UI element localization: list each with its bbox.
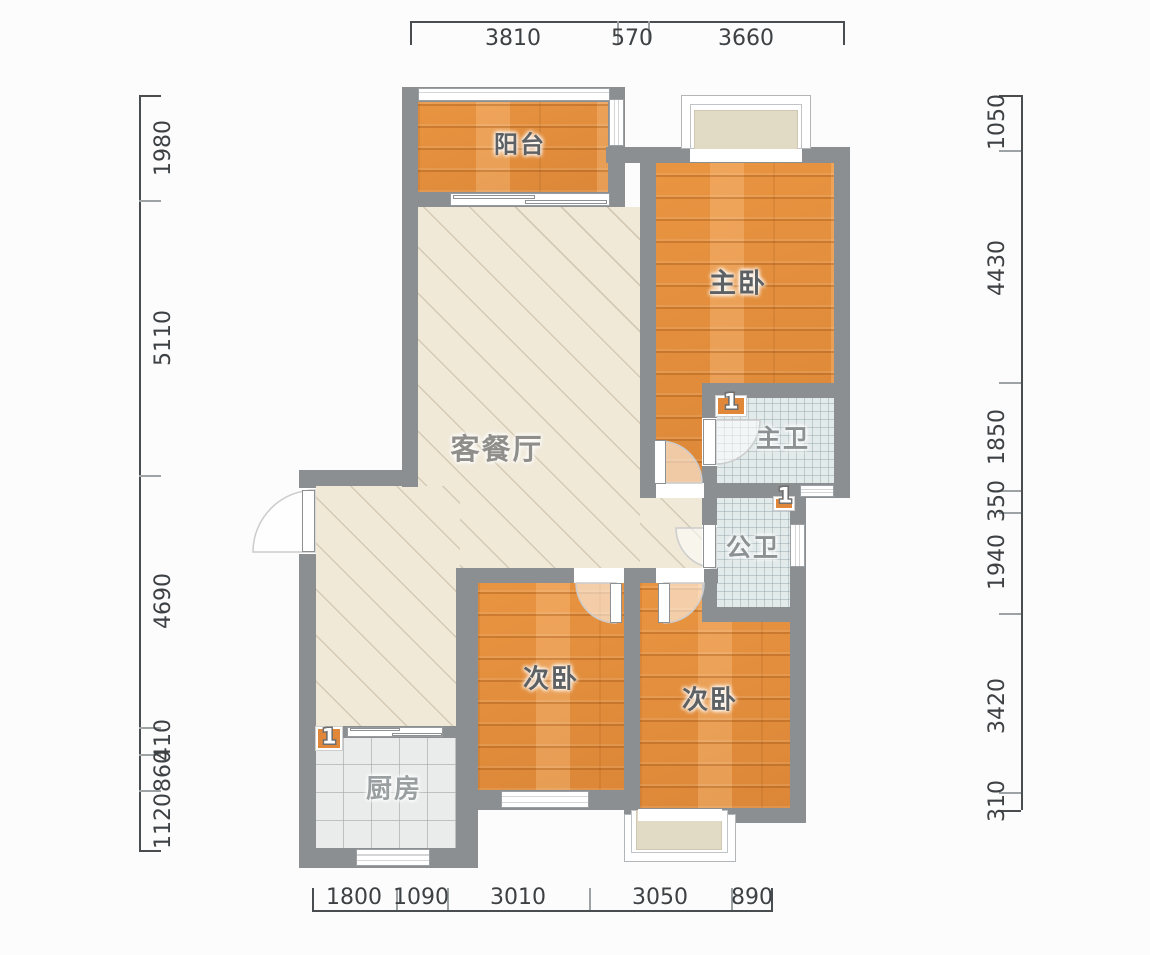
dim-value: 3810 — [485, 28, 541, 50]
master-bath-window — [800, 485, 834, 497]
dim-tick — [139, 200, 161, 202]
dim-value: 570 — [611, 28, 653, 50]
kitchen-window — [356, 849, 430, 866]
dim-tick — [410, 21, 412, 45]
dim-value: 890 — [731, 887, 773, 909]
wall-right-outer-upper — [834, 147, 850, 498]
dim-value: 1090 — [393, 887, 449, 909]
sliding-door-panel — [392, 733, 442, 736]
public-bath-door-leaf — [703, 524, 716, 568]
dim-value: 4690 — [153, 573, 175, 629]
master-bedroom-label: 主卧 — [709, 262, 767, 301]
dim-value: 1800 — [326, 887, 382, 909]
kitchen-flue-marker: 1 — [322, 727, 337, 748]
dim-tick — [139, 95, 161, 97]
dim-value: 1980 — [153, 120, 175, 176]
kitchen-label: 厨房 — [366, 769, 422, 806]
dim-value: 3010 — [490, 887, 546, 909]
master-bedroom-door-leaf — [654, 440, 666, 484]
hallway-floor — [640, 498, 702, 568]
dim-value: 1850 — [987, 409, 1009, 465]
dim-value: 4430 — [987, 240, 1009, 296]
bedroom-left-label: 次卧 — [523, 659, 579, 696]
balcony-label: 阳台 — [494, 125, 546, 160]
dim-value: 310 — [987, 780, 1009, 822]
dim-value: 5110 — [153, 310, 175, 366]
dim-value: 3660 — [718, 28, 774, 50]
dim-value: 1940 — [987, 534, 1009, 590]
bedroom-left-door-opening — [574, 568, 624, 583]
wall-balcony-left — [402, 87, 418, 207]
bedroom-left-window — [501, 791, 589, 808]
dim-line — [312, 910, 773, 912]
public-bath-flue-marker: 1 — [778, 486, 793, 507]
wall-entry-top — [299, 470, 418, 486]
dim-value: 3050 — [632, 887, 688, 909]
sliding-door-panel — [525, 200, 607, 204]
living-dining-label: 客餐厅 — [450, 426, 543, 468]
bedroom-right-label: 次卧 — [682, 680, 738, 717]
dim-tick — [999, 613, 1021, 615]
dim-tick — [999, 382, 1021, 384]
dim-value: 860 — [153, 750, 175, 792]
kitchen-sliding-door — [347, 727, 443, 737]
balcony-sliding-door — [450, 193, 610, 206]
dim-tick — [139, 850, 161, 852]
dim-tick — [312, 888, 314, 910]
sliding-door-panel — [453, 195, 535, 199]
wall-kitchen-bedroom-divider — [456, 568, 478, 868]
bedroom-right-bay-opening — [638, 809, 722, 821]
master-bath-label: 主卫 — [756, 419, 810, 455]
dim-value: 3420 — [987, 678, 1009, 734]
entry-door-leaf — [302, 490, 315, 552]
wall-bedroom-divider — [624, 568, 640, 812]
public-bath-window — [790, 524, 805, 567]
dim-tick — [139, 475, 161, 477]
master-bath-flue-marker: 1 — [724, 392, 739, 413]
dim-line — [410, 21, 845, 23]
public-bath-label: 公卫 — [726, 528, 780, 564]
dim-tick — [589, 888, 591, 910]
wall-living-left — [402, 192, 418, 487]
dim-value: 350 — [987, 480, 1009, 522]
master-bedroom-door-opening — [656, 483, 704, 498]
master-bay-opening — [690, 149, 802, 162]
floor-plan: 1 1 1 阳台 主卧 客餐厅 主卫 公卫 次卧 次卧 厨房 3810 570 … — [0, 0, 1150, 955]
dim-tick — [843, 21, 845, 45]
dim-value: 1120 — [153, 793, 175, 849]
sliding-door-panel — [350, 728, 400, 731]
wall-public-bath-bottom — [702, 607, 806, 622]
bedroom-right-door-opening — [656, 568, 704, 583]
balcony-side-window — [609, 99, 624, 146]
dim-value: 1050 — [987, 94, 1009, 150]
dim-line — [1021, 95, 1023, 810]
balcony-window — [418, 88, 610, 101]
master-bedroom-bay-window-sill — [694, 110, 798, 152]
bedroom-left-door-leaf — [610, 583, 622, 623]
living-dining-floor-extension — [316, 486, 460, 726]
dim-tick — [999, 150, 1021, 152]
master-bath-door-leaf — [703, 419, 716, 465]
bedroom-right-door-leaf — [658, 583, 670, 623]
dim-line — [139, 95, 141, 852]
